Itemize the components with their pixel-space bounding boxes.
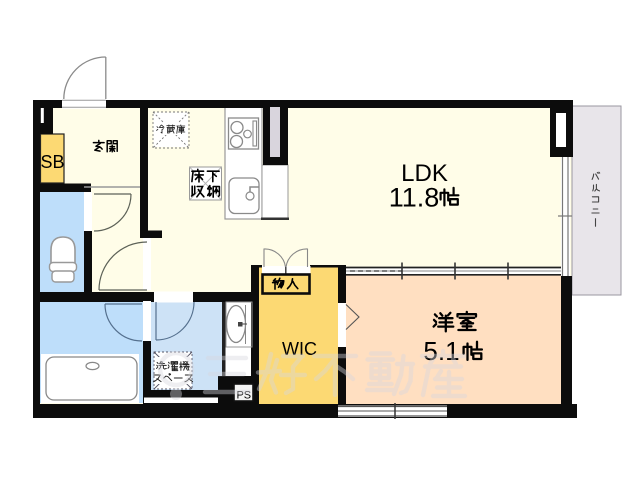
svg-text:SB: SB [40, 152, 64, 172]
svg-text:11.8: 11.8 [389, 183, 440, 213]
